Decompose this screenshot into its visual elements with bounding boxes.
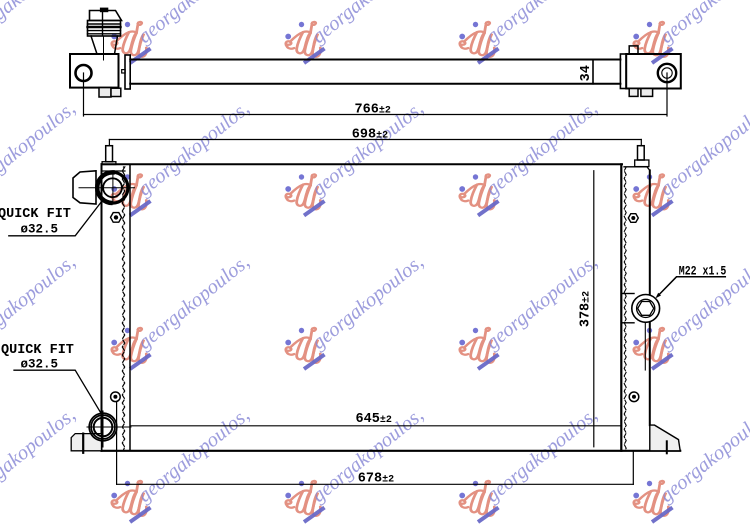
svg-text:QUICK FIT: QUICK FIT — [1, 343, 74, 358]
svg-text:ø32.5: ø32.5 — [21, 223, 59, 237]
svg-text:766±2: 766±2 — [355, 102, 391, 117]
svg-text:ø32.5: ø32.5 — [21, 358, 59, 372]
svg-text:378±2: 378±2 — [578, 291, 593, 327]
svg-text:698±2: 698±2 — [352, 127, 388, 142]
svg-text:645±2: 645±2 — [356, 412, 392, 427]
svg-text:34: 34 — [579, 65, 594, 81]
svg-text:M22 x1.5: M22 x1.5 — [679, 265, 727, 279]
svg-text:678±2: 678±2 — [358, 472, 394, 487]
svg-text:QUICK FIT: QUICK FIT — [0, 207, 71, 222]
